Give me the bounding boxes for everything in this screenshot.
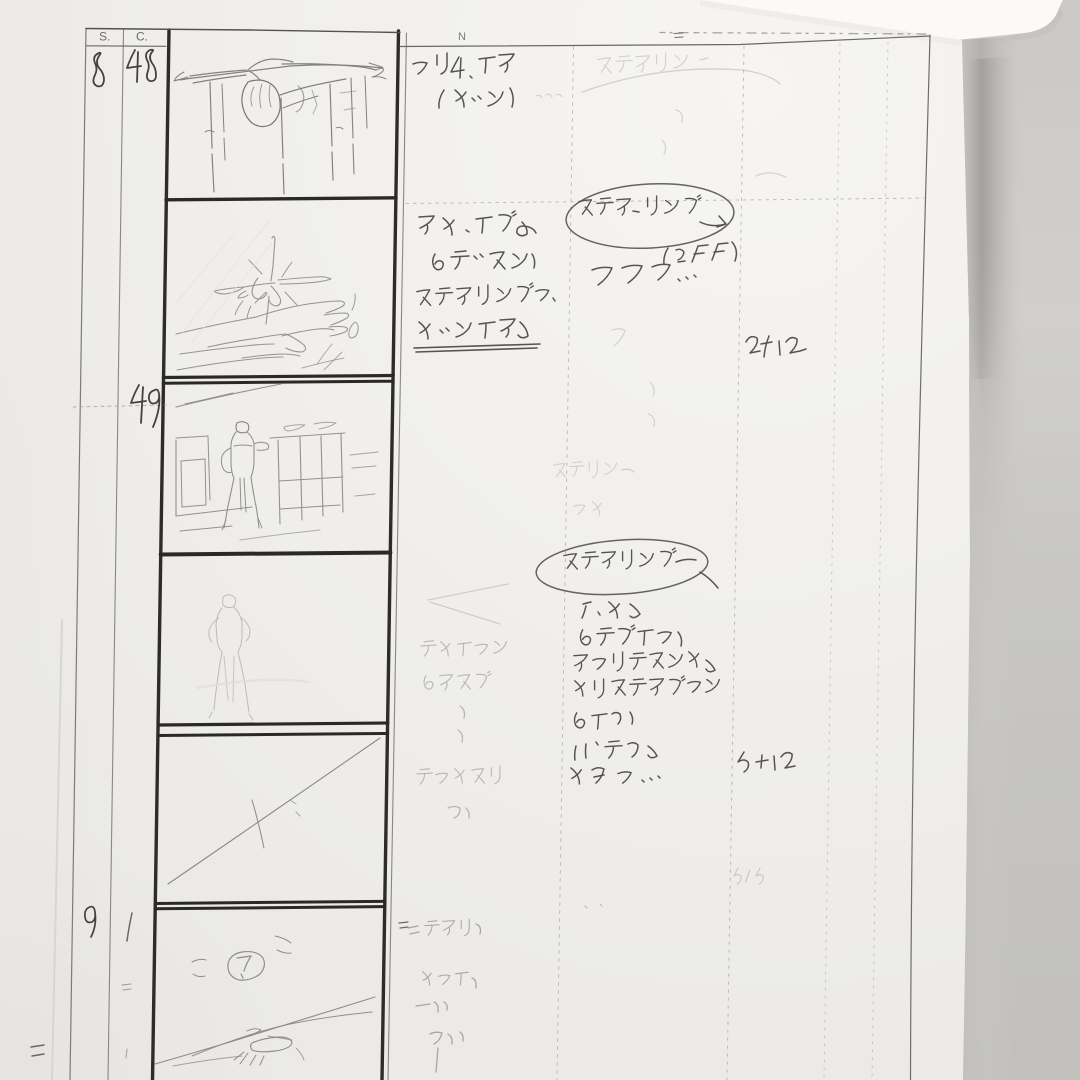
- svg-text:C.: C.: [136, 30, 148, 44]
- svg-text:N: N: [458, 31, 466, 43]
- svg-text:S.: S.: [99, 30, 110, 44]
